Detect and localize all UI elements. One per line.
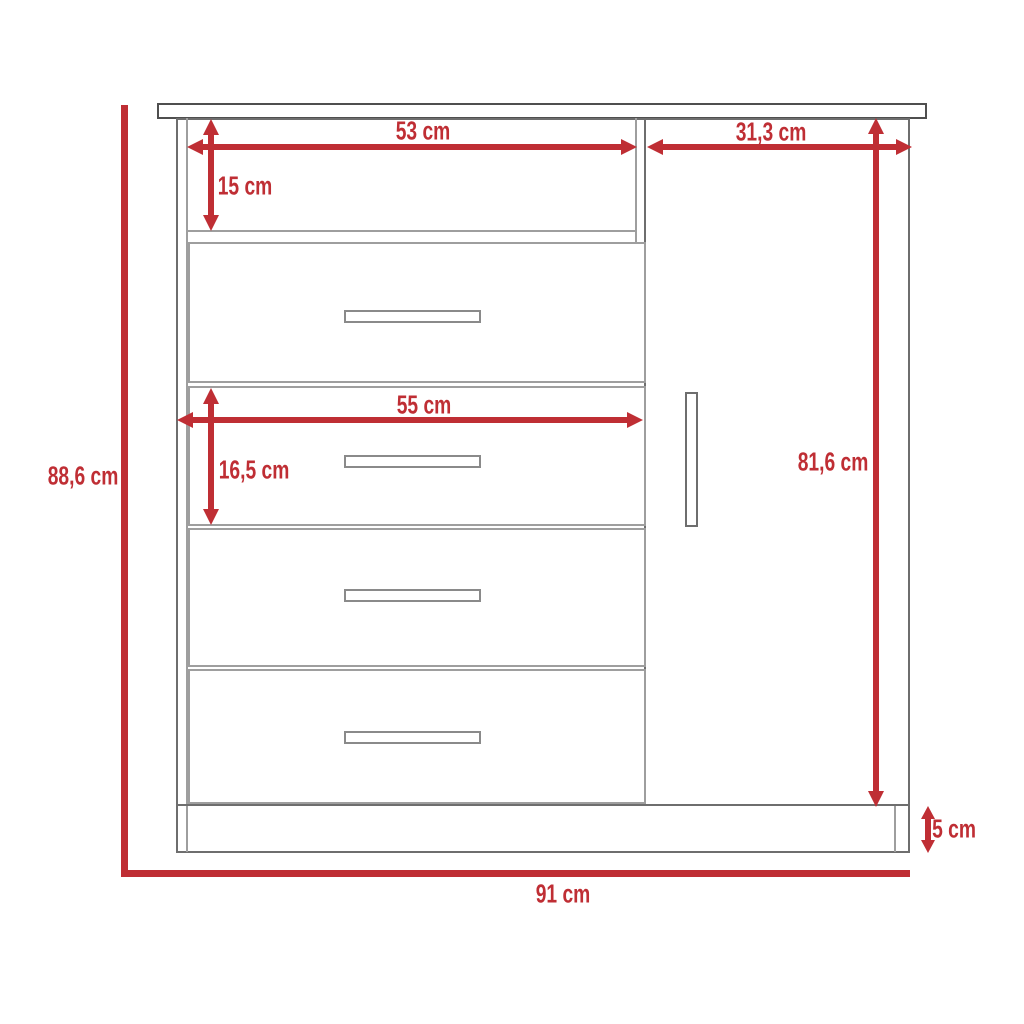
dim-label-door-width: 31,3 cm bbox=[736, 117, 807, 148]
dim-label-door-height: 81,6 cm bbox=[798, 447, 869, 478]
drawer-3-handle bbox=[344, 589, 481, 602]
dim-label-drawer-width: 55 cm bbox=[397, 390, 452, 421]
base-left-support-line bbox=[186, 806, 188, 852]
dim-label-drawer-height: 16,5 cm bbox=[219, 455, 290, 486]
dim-label-shelf-height: 15 cm bbox=[218, 171, 273, 202]
dresser-dimension-diagram: 88,6 cm 91 cm 53 cm 31,3 cm 15 cm 55 cm … bbox=[0, 0, 1024, 1024]
dim-overall-height-line bbox=[121, 105, 128, 877]
dim-shelf-height-line bbox=[208, 132, 214, 218]
drawer-2-handle bbox=[344, 455, 481, 468]
dim-overall-width-line bbox=[121, 870, 910, 877]
base-top-line bbox=[176, 804, 910, 806]
dim-label-overall-height: 88,6 cm bbox=[48, 461, 119, 492]
top-panel bbox=[157, 103, 927, 119]
drawer-4-handle bbox=[344, 731, 481, 744]
drawer-1-handle bbox=[344, 310, 481, 323]
dim-base-height-line bbox=[925, 816, 931, 843]
shelf-right-wall-line bbox=[635, 118, 637, 243]
base-right-support-line bbox=[894, 806, 896, 852]
door-handle bbox=[685, 392, 698, 527]
shelf-board-line bbox=[188, 230, 636, 232]
dim-label-overall-width: 91 cm bbox=[536, 879, 591, 910]
dim-door-height-line bbox=[873, 131, 879, 794]
dim-label-shelf-width: 53 cm bbox=[396, 116, 451, 147]
dim-drawer-height-line bbox=[208, 401, 214, 512]
dim-label-base-height: 5 cm bbox=[932, 814, 976, 845]
